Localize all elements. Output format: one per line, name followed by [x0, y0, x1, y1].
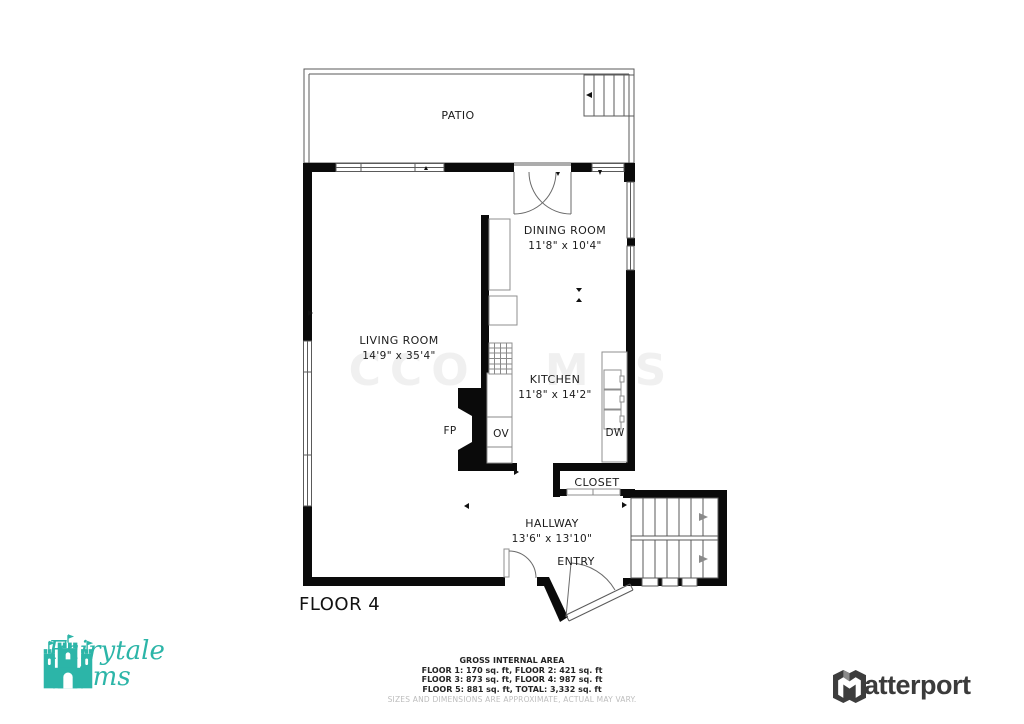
room-dims-living: 14'9" x 35'4" [362, 350, 436, 362]
entry-door [566, 563, 633, 621]
room-dims-dining: 11'8" x 10'4" [528, 240, 602, 252]
floor-plan-drawing: CCOR MLS [0, 0, 1024, 724]
dishwasher-label: DW [605, 427, 624, 439]
room-labels: PATIO DINING ROOM 11'8" x 10'4" LIVING R… [359, 109, 624, 568]
room-label-entry: ENTRY [557, 555, 595, 568]
room-label-kitchen: KITCHEN [530, 373, 580, 386]
matterport-logo: Matterport [833, 670, 971, 701]
fireplace [458, 388, 489, 470]
dishwasher-appliances [604, 370, 624, 429]
room-label-hallway: HALLWAY [525, 517, 579, 530]
room-label-closet: CLOSET [574, 476, 619, 489]
room-label-patio: PATIO [441, 109, 474, 122]
main-stairs [622, 498, 718, 578]
room-dims-hallway: 13'6" x 13'10" [512, 533, 593, 545]
oven-label: OV [493, 428, 509, 440]
floorplan-page: CCOR MLS [0, 0, 1024, 724]
fairytale-films-logo: Fairytale Films [40, 634, 165, 690]
stair-direction-arrow [586, 92, 592, 98]
castle-icon [40, 634, 96, 696]
hallway-door [504, 549, 536, 578]
plan-markers [308, 166, 602, 509]
closet-door [567, 489, 620, 495]
room-label-dining: DINING ROOM [524, 224, 606, 237]
floor-number-label: FLOOR 4 [299, 594, 380, 615]
matterport-icon [833, 670, 866, 703]
french-doors-patio [514, 165, 571, 214]
patio-stairs [584, 75, 634, 116]
room-dims-kitchen: 11'8" x 14'2" [518, 389, 592, 401]
room-label-living: LIVING ROOM [359, 334, 438, 347]
stove [489, 343, 512, 374]
fireplace-label: FP [444, 425, 457, 437]
